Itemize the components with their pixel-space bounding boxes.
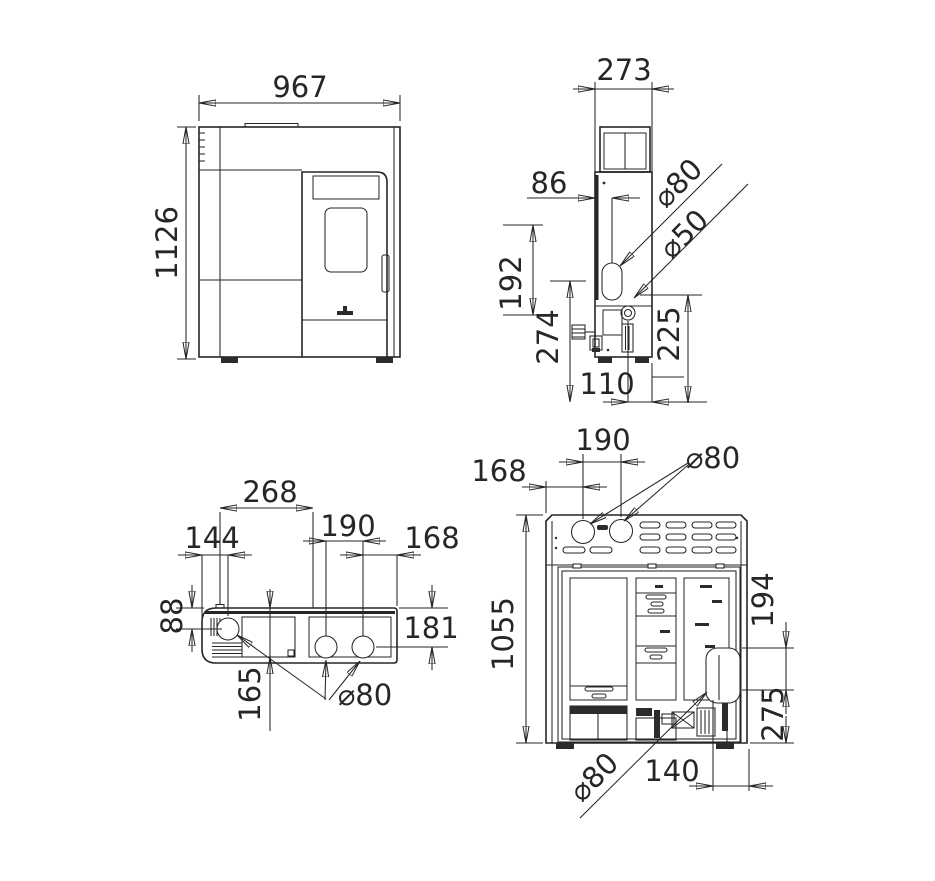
dim-side-depth: 273	[596, 53, 651, 87]
foot-front	[635, 357, 649, 363]
hinge-ticks	[199, 133, 205, 161]
dim-rear-height: 1055	[486, 597, 520, 671]
dim-rear-to-flue-top: 88	[155, 598, 189, 635]
air-inlet	[621, 306, 635, 320]
rear-foot-right	[716, 743, 734, 749]
door-window	[325, 208, 367, 272]
dim-rear-to-outlets: 181	[403, 611, 458, 645]
side-flue-outlet	[602, 263, 622, 300]
dim-rear-outlet-spacing: 190	[575, 423, 630, 457]
dim-top-outlet-diameter: ⌀80	[338, 678, 392, 712]
dim-front-width: 967	[272, 70, 327, 104]
rear-grille-columns	[570, 578, 729, 700]
dim-rear-to-flue: 86	[531, 166, 568, 200]
dim-rear-flue-diameter: ⌀80	[563, 746, 625, 808]
dim-flue-to-edge: 140	[644, 754, 699, 788]
front-view-outline	[199, 124, 400, 358]
rear-view-details	[555, 520, 740, 750]
dim-rear-outlet-diameter: ⌀80	[686, 441, 740, 475]
side-body	[595, 172, 652, 357]
rear-outlet-2	[610, 520, 633, 543]
foot-left	[221, 357, 238, 363]
top-view-dimensions: 268 190 144 168 88	[155, 475, 460, 731]
dim-front-height: 1126	[150, 206, 184, 280]
dim-rear-to-lid: 165	[233, 666, 267, 721]
dim-edge-to-flue: 144	[184, 521, 239, 555]
front-view-details	[199, 133, 393, 363]
dim-air-inlet-height: 225	[652, 306, 686, 361]
rear-view: 190 168 ⌀80 1055 194 275	[471, 423, 794, 818]
hopper-lid-latch	[288, 650, 294, 656]
door-handle	[382, 255, 389, 292]
dim-outlet-to-edge: 168	[404, 521, 459, 555]
rear-view-dimensions: 190 168 ⌀80 1055 194 275	[471, 423, 794, 818]
foot-rear	[598, 357, 612, 363]
door-panel	[302, 172, 387, 357]
side-view-dimensions: 273 86 192 274 225 110	[494, 53, 748, 403]
dim-flue-diameter: ⌀80	[647, 152, 709, 214]
side-view: 273 86 192 274 225 110	[494, 53, 748, 403]
dim-air-diameter: ⌀50	[653, 203, 715, 265]
side-vents	[603, 310, 622, 335]
top-view: 268 190 144 168 88	[155, 475, 460, 731]
dim-flue-height: 275	[756, 686, 790, 741]
hopper-lid	[242, 617, 295, 657]
dim-flue-bottom-height: 274	[531, 309, 565, 364]
dim-cutout-height: 194	[746, 572, 780, 627]
front-view-dimensions: 967 1126	[150, 70, 400, 359]
flue-cutout	[706, 648, 740, 703]
hot-air-outlet-2	[352, 636, 374, 658]
dim-rear-edge-to-outlet: 168	[471, 454, 526, 488]
dim-top-outlet-spacing: 190	[320, 509, 375, 543]
hot-air-outlet-1	[315, 636, 337, 658]
technical-drawing-page: 967 1126	[0, 0, 935, 881]
stove-dimension-drawing: 967 1126	[0, 0, 935, 881]
dim-air-to-front: 110	[579, 367, 634, 401]
rear-bottom-components	[570, 706, 715, 740]
dim-flue-vertical: 192	[494, 255, 528, 310]
side-view-details	[572, 182, 649, 363]
switch	[590, 336, 602, 350]
top-view-details	[211, 617, 391, 658]
front-view: 967 1126	[150, 70, 400, 363]
door-latch	[337, 311, 353, 315]
dim-lid-width: 268	[242, 475, 297, 509]
rear-foot-left	[556, 743, 574, 749]
front-air-grille	[313, 176, 379, 199]
foot-right	[376, 357, 393, 363]
door-latch-pin	[343, 306, 347, 311]
